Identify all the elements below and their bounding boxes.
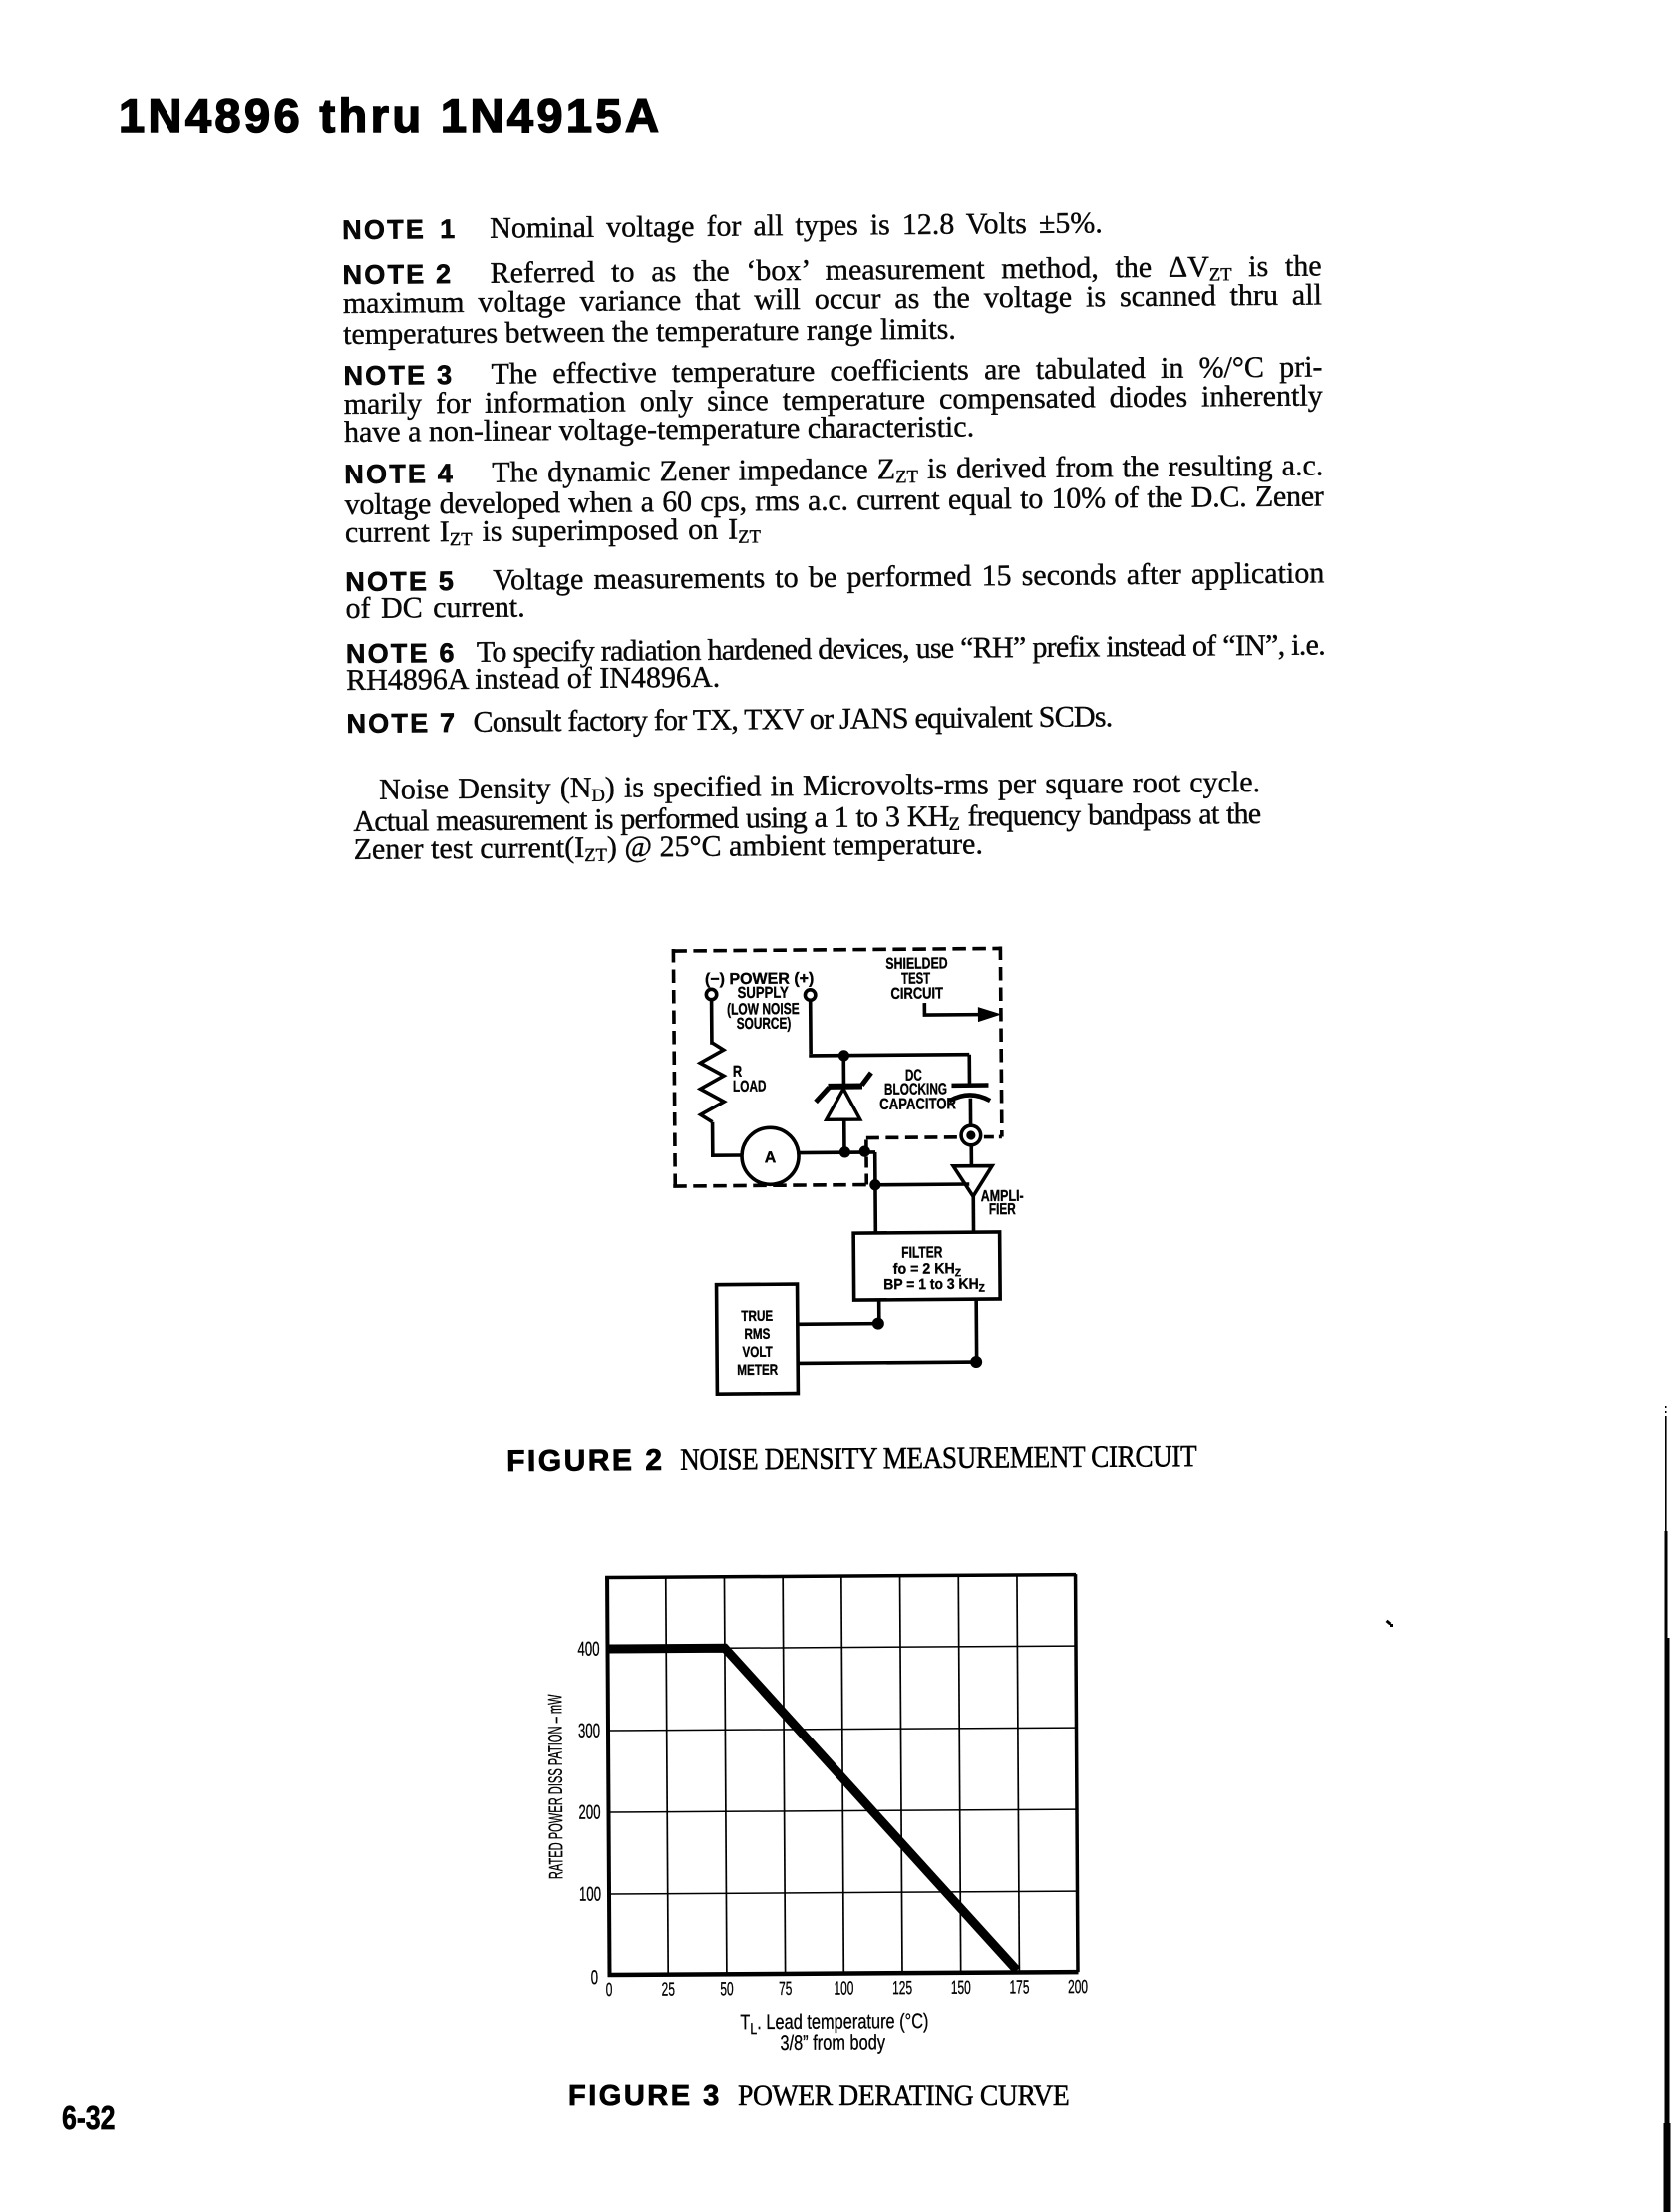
svg-text:50: 50 bbox=[720, 1980, 734, 2000]
svg-text:METER: METER bbox=[737, 1361, 778, 1378]
svg-text:125: 125 bbox=[892, 1979, 912, 1999]
svg-text:FIER: FIER bbox=[989, 1199, 1016, 1217]
svg-text:RMS: RMS bbox=[744, 1325, 770, 1342]
svg-text:FILTER: FILTER bbox=[901, 1243, 942, 1261]
svg-text:400: 400 bbox=[577, 1638, 599, 1661]
svg-text:25: 25 bbox=[662, 1980, 676, 2000]
svg-text:A: A bbox=[765, 1149, 777, 1166]
svg-text:BP = 1 to 3 KHZ: BP = 1 to 3 KHZ bbox=[883, 1276, 985, 1295]
svg-text:SOURCE): SOURCE) bbox=[737, 1014, 792, 1033]
svg-text:VOLT: VOLT bbox=[742, 1343, 773, 1360]
svg-text:LOAD: LOAD bbox=[733, 1077, 767, 1095]
svg-text:175: 175 bbox=[1009, 1978, 1029, 1998]
svg-text:0: 0 bbox=[591, 1966, 598, 1988]
svg-text:TRUE: TRUE bbox=[741, 1307, 773, 1324]
svg-text:CIRCUIT: CIRCUIT bbox=[890, 985, 943, 1003]
svg-text:100: 100 bbox=[579, 1883, 601, 1906]
svg-text:RATED POWER DISS PATION – mW: RATED POWER DISS PATION – mW bbox=[545, 1694, 567, 1879]
svg-text:100: 100 bbox=[834, 1979, 853, 1999]
svg-text:300: 300 bbox=[578, 1720, 600, 1742]
svg-text:3/8” from body: 3/8” from body bbox=[780, 2030, 885, 2054]
svg-text:200: 200 bbox=[1068, 1978, 1088, 1998]
svg-text:75: 75 bbox=[779, 1979, 793, 1999]
svg-text:0: 0 bbox=[606, 1980, 613, 2000]
svg-text:200: 200 bbox=[578, 1801, 600, 1824]
svg-text:150: 150 bbox=[951, 1978, 971, 1998]
svg-text:CAPACITOR: CAPACITOR bbox=[879, 1096, 956, 1113]
